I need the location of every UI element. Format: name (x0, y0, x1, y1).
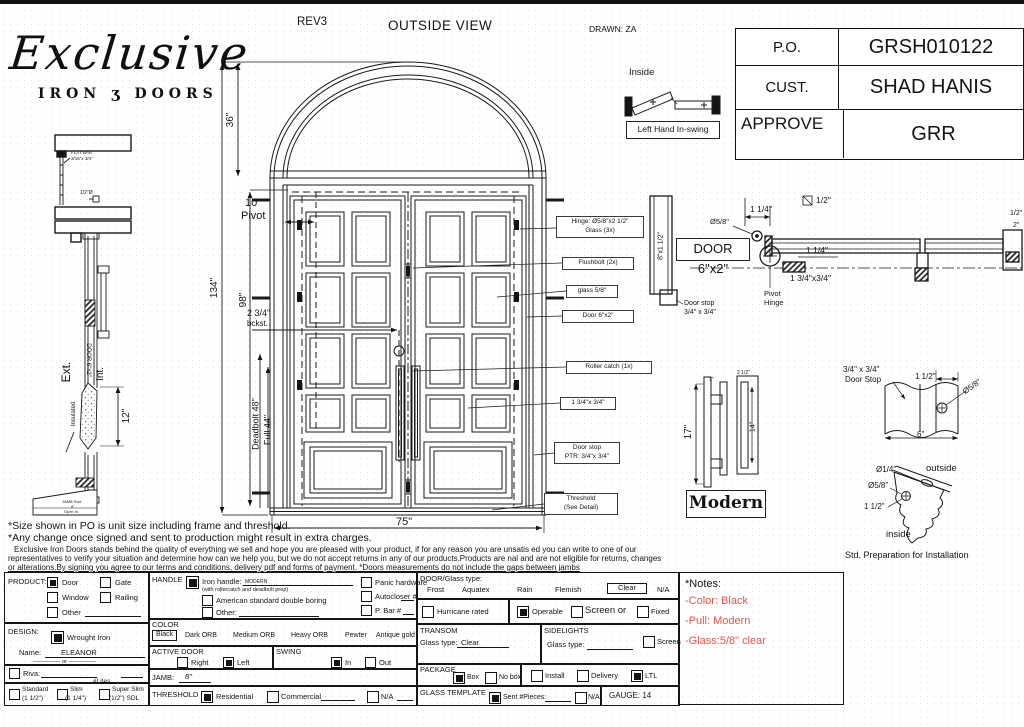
disclaimer-para2: representatives to verify your situation… (8, 555, 661, 563)
callout-roller-catch: Roller catch (1x) (566, 361, 652, 374)
ltl-label: LTL (645, 672, 657, 680)
company-logo-subtitle: IRON ʒ DOORS (38, 84, 218, 102)
color-box: COLOR Black Dark ORB Medium ORB Heavy OR… (148, 618, 418, 647)
checkbox-no-box[interactable] (485, 672, 497, 684)
table-row: P.O. GRSH010122 (736, 29, 1023, 66)
sidelights-box: SIDELIGHTS Glass type: Screen (540, 623, 680, 665)
checkbox-window[interactable] (47, 592, 58, 603)
door-glass-label: DOOR/Glass type: (420, 575, 482, 583)
logo-word-iron: IRON (38, 86, 101, 102)
color-opt-mediumorb[interactable]: Medium ORB (233, 632, 275, 640)
edge-dim-1: 1/2" (1010, 210, 1022, 217)
checkbox-ltl[interactable] (631, 670, 643, 682)
door-size-box: DOOR 6"x2" (676, 238, 750, 261)
product-other-label: Other (62, 609, 81, 617)
design-name-label: Name: (19, 649, 41, 657)
view-title: OUTSIDE VIEW (388, 19, 492, 33)
inside-face-label: inside (886, 530, 911, 540)
dim-pull-thickness: 1" (709, 378, 714, 383)
prep-dim: 1 1/2" (864, 503, 885, 511)
sidelights-glass-field[interactable] (587, 640, 633, 650)
riva-field[interactable] (41, 668, 97, 678)
glass-opt-frost[interactable]: Frost (427, 586, 444, 594)
gauge-label: GAUGE: 14 (609, 692, 651, 701)
super-slim-size-label: (1/2") SDL (109, 695, 139, 702)
lites-box: Standard (1 1/2") Slim (1 1/4") Super Sl… (4, 682, 150, 706)
swing-label: SWING (276, 648, 301, 656)
checkbox-package-box[interactable] (453, 672, 465, 684)
color-opt-heavyorb[interactable]: Heavy ORB (291, 632, 328, 640)
operable-label: Operable (532, 608, 563, 616)
gauge-box: GAUGE: 14 (600, 685, 680, 706)
riva-label: Riva: (23, 670, 40, 678)
dim-transom-height: 36" (226, 113, 236, 128)
sent-pieces-field[interactable] (545, 692, 571, 702)
company-logo-script: Exclusive (7, 26, 252, 80)
checkbox-screen[interactable] (571, 606, 583, 618)
exterior-label: Ext. (60, 362, 72, 383)
riva-box: Riva: #Lites (4, 664, 150, 684)
checkbox-delivery[interactable] (577, 670, 589, 682)
standard-size-label: (1 1/2") (22, 695, 43, 702)
door-stop-label-line1: Door stop (684, 300, 714, 307)
table-row: CUST. SHAD HANIS (736, 66, 1023, 110)
product-door-label: Door (62, 579, 78, 587)
color-opt-darkorb[interactable]: Dark ORB (185, 632, 217, 640)
backset-word: bckst. (247, 320, 268, 328)
operable-box: Operable Screen or Fixed (508, 598, 680, 625)
product-gate-label: Gate (115, 579, 131, 587)
iron-handle-field[interactable] (243, 577, 353, 586)
pbar-label: P. Bar # (375, 607, 401, 615)
swing-in-label: In (345, 659, 351, 667)
disclaimer-line1: *Size shown in PO is unit size including… (8, 521, 290, 532)
commercial-label: Commercial (281, 693, 321, 701)
transom-box: TRANSOM Glass type: Clear (416, 623, 542, 665)
inside-label: Inside (629, 68, 654, 78)
glass-template-box: GLASS TEMPLATE Sent #Pieces: N/A (416, 685, 602, 706)
door-stop-label-line2: 3/4" x 3/4" (684, 309, 716, 316)
slim-label: Slim (70, 686, 83, 693)
disclaimer-para3: or alterations.By signing you agree to o… (8, 564, 580, 572)
checkbox-handle-other[interactable] (202, 607, 213, 618)
interior-label: Int. (96, 367, 106, 381)
half-dia-label: 1/2"Ø (80, 191, 93, 196)
prep-hole-dia-quarter: Ø1/4" (876, 466, 896, 474)
checkbox-panic-hardware[interactable] (361, 577, 372, 588)
po-label: P.O. (736, 29, 839, 65)
design-label: DESIGN: (8, 628, 39, 636)
checkbox-riva[interactable] (9, 668, 20, 679)
checkbox-pbar[interactable] (361, 605, 372, 616)
checkbox-commercial[interactable] (267, 691, 279, 703)
sent-pieces-label: Sent #Pieces: (503, 694, 546, 702)
callout-glass: glass 5/8" (566, 285, 618, 298)
callout-door-stop: Door stopPTR: 3/4"x 3/4" (554, 442, 620, 464)
approve-label: APPROVE (736, 110, 844, 158)
pivot-word: Pivot (241, 211, 265, 222)
active-door-label: ACTIVE DOOR (152, 648, 204, 656)
handle-label: HANDLE (152, 576, 182, 584)
dim-pull-height: Full 44" (264, 415, 273, 445)
dim-pull-inner: 14" (750, 422, 757, 432)
logo-word-doors: DOORS (134, 86, 217, 102)
transom-glass-field[interactable] (457, 638, 509, 648)
notes-box: *Notes: -Color: Black -Pull: Modern -Gla… (678, 572, 844, 705)
fixed-label: Fixed (651, 608, 669, 616)
package-box: PACKAGE Box No box (416, 663, 522, 687)
iron-handle-label: Iron handle: (202, 578, 242, 586)
wrought-iron-label: Wrought Iron (67, 634, 110, 642)
prep-hole-dia-fiveeighths: Ø5/8" (868, 482, 888, 490)
checkbox-operable[interactable] (517, 606, 529, 618)
glass-opt-rain[interactable]: Rain (517, 586, 532, 594)
design-box: DESIGN: Wrought Iron Name: ELEANOR —————… (4, 622, 150, 666)
glass-opt-aquatex[interactable]: Aquatex (462, 586, 490, 594)
residential-label: Residential (216, 693, 253, 701)
callout-hinge-line1: Hinge: Ø5/8"x2 1/2" (559, 218, 641, 227)
cust-value: SHAD HANIS (839, 66, 1023, 109)
sidelights-glass-label: Glass type: (547, 641, 585, 649)
disclaimer-line2: *Any change once signed and sent to prod… (8, 533, 372, 544)
callout-hinge-line2: Glass (3x) (559, 227, 641, 236)
super-slim-label: Super Slim (112, 686, 144, 693)
checkbox-railing[interactable] (100, 592, 111, 603)
callout-hinge: Hinge: Ø5/8"x2 1/2" Glass (3x) (556, 216, 644, 238)
checkbox-left[interactable] (223, 657, 234, 668)
drawn-by-label: DRAWN: ZA (589, 25, 636, 34)
jamb-field[interactable] (179, 673, 211, 683)
checkbox-out[interactable] (365, 657, 376, 668)
checkbox-install[interactable] (531, 670, 543, 682)
callout-flushbolt: Flushbolt (2x) (562, 257, 634, 270)
dim-gap-label: 1 1/4" (806, 246, 828, 255)
swing-box: SWING In Out (272, 645, 418, 670)
active-right-label: Right (191, 659, 209, 667)
swing-out-label: Out (379, 659, 391, 667)
install-label: Install (545, 672, 565, 680)
american-standard-label: American standard double boring (216, 597, 327, 605)
product-window-label: Window (62, 594, 89, 602)
callout-threshold: Threshold(See Detail) (544, 493, 618, 515)
handle-other-field[interactable] (239, 607, 319, 617)
threshold-label: THRESHOLD (152, 691, 198, 699)
handle-box: HANDLE Iron handle: MODERN (with rollerc… (148, 572, 418, 620)
checkbox-fixed[interactable] (637, 606, 649, 618)
stop-size-label-line2: Door Stop (845, 376, 881, 384)
glass-template-label: GLASS TEMPLATE (420, 689, 486, 697)
outside-label: outside (926, 464, 957, 474)
dim-stop-width: 6" (917, 431, 924, 439)
color-label: COLOR (152, 621, 179, 629)
swing-diagram (625, 92, 720, 116)
checkbox-sent-pieces[interactable] (489, 692, 501, 704)
checkbox-threshold-na[interactable] (367, 691, 379, 703)
dim-door-height: 98" (239, 293, 249, 308)
checkbox-residential[interactable] (201, 691, 213, 703)
checkbox-hurricane[interactable] (422, 606, 434, 618)
checkbox-door[interactable] (47, 577, 58, 588)
iron-handle-note: (with rollercatch and deadbolt prep) (202, 587, 288, 593)
dim-pivot-inset: 1 1/4" (750, 205, 772, 214)
dim-insulation: 12" (122, 409, 132, 424)
ship-box: Install Delivery LTL (520, 663, 680, 687)
dim-pull-depth: 2 1/2" (737, 371, 750, 376)
square-bar-label: 1/2" (816, 196, 831, 205)
product-box: PRODUCT: Door Gate Window Railing Other (4, 572, 150, 624)
dim-total-height: 134" (210, 278, 220, 298)
note-color: -Color: Black (685, 595, 748, 607)
stop-block-label: 1 3/4"x3/4" (790, 274, 831, 283)
transom-glass-label: Glass type: (420, 639, 458, 647)
checkbox-gate[interactable] (100, 577, 111, 588)
swing-caption: Left Hand In-swing (626, 121, 720, 139)
checkbox-iron-handle[interactable] (186, 576, 199, 589)
door-glass-box: DOOR/Glass type: Frost Aquatex Rain Flem… (416, 572, 680, 600)
checkbox-standard[interactable] (9, 689, 20, 700)
sidelights-label: SIDELIGHTS (544, 627, 589, 635)
active-left-label: Left (237, 659, 250, 667)
dim-pivot-offset: 10" (245, 198, 261, 209)
cust-label: CUST. (736, 66, 839, 109)
jamb-size-label: 8"x1 1/2" (658, 232, 665, 260)
dim-pull-length: 17" (684, 425, 694, 440)
checkbox-sidelight-screen[interactable] (643, 636, 655, 648)
hurricane-label: Hurricane rated (437, 608, 489, 616)
checkbox-product-other[interactable] (47, 607, 58, 618)
shop-drawing-sheet: Exclusive IRON ʒ DOORS REV3 OUTSIDE VIEW… (0, 0, 1024, 727)
color-opt-pewter[interactable]: Pewter (345, 632, 367, 640)
checkbox-autocloser[interactable] (361, 591, 372, 602)
edge-dim-2: 2" (1013, 222, 1019, 229)
color-opt-antiquegold[interactable]: Antique gold (376, 632, 415, 640)
pivot-hinge-label-line2: Hinge (764, 299, 784, 307)
template-na-label: N/A (588, 694, 600, 702)
package-box-label: Box (467, 674, 479, 682)
product-other-field[interactable] (85, 607, 141, 617)
product-label: PRODUCT: (8, 578, 46, 586)
threshold-na-field[interactable] (397, 691, 413, 701)
pbar-field[interactable] (403, 605, 414, 615)
glass-opt-clear-selected[interactable]: Clear (607, 583, 647, 594)
po-value: GRSH010122 (839, 29, 1023, 65)
active-door-box: ACTIVE DOOR Right Left (148, 645, 274, 670)
note-pull: -Pull: Modern (685, 615, 750, 627)
stop-size-label-line1: 3/4" x 3/4" (843, 366, 879, 374)
prep-caption: Std. Preparation for Installation (845, 551, 969, 560)
handle-other-label: Other: (216, 609, 237, 617)
table-row: APPROVE GRR (736, 110, 1023, 158)
approve-value: GRR (844, 110, 1023, 158)
no-box-label: No box (499, 674, 521, 682)
insulated-label: Insulated (71, 402, 77, 426)
dim-stop-offset: 1 1/2" (915, 373, 936, 381)
design-name-field[interactable] (45, 648, 145, 658)
jamb-label: JAMB: (152, 674, 174, 682)
dim-deadbolt-height: Deadbolt 48" (252, 398, 261, 450)
checkbox-american-standard[interactable] (202, 595, 213, 606)
note-glass: -Glass:5/8" clear (685, 635, 766, 647)
notes-title: *Notes: (685, 578, 721, 590)
flatbar-label-line2: 3/16"x 3/4" (71, 157, 93, 162)
product-railing-label: Railing (115, 594, 138, 602)
pull-style-caption: Modern (686, 490, 766, 518)
glass-opt-na[interactable]: N/A (657, 586, 670, 594)
dim-unit-width: 75" (396, 517, 412, 528)
checkbox-wrought-iron[interactable] (51, 631, 64, 644)
dim-backset: 2 3/4" (247, 309, 270, 318)
glass-opt-flemish[interactable]: Flemish (555, 586, 581, 594)
pivot-hinge-label-line1: Pivot (764, 290, 781, 298)
scroll-icon: ʒ (111, 84, 125, 102)
door-size-rotated-label: DOOR 6"x2" (85, 343, 91, 377)
commercial-field[interactable] (321, 691, 355, 701)
screen-or-label: Screen or (585, 606, 626, 616)
delivery-label: Delivery (591, 672, 618, 680)
riva-field2[interactable] (121, 668, 143, 678)
threshold-box: THRESHOLD Residential Commercial N/A (148, 685, 418, 706)
callout-door-profile: Door 6"x2" (562, 310, 634, 323)
transom-label: TRANSOM (420, 627, 458, 635)
hurricane-box: Hurricane rated (416, 598, 510, 625)
checkbox-template-na[interactable] (575, 692, 587, 704)
color-selected[interactable]: Black (152, 630, 177, 641)
elevation-door-drawing (252, 62, 564, 515)
checkbox-in[interactable] (331, 657, 342, 668)
callout-stile-size: 1 3/4"x 3/4" (560, 397, 616, 410)
pivot-dia-label: Ø5/8" (710, 218, 729, 226)
package-label: PACKAGE (420, 666, 456, 674)
disclaimer-para1: Exclusive Iron Doors stands behind the q… (14, 546, 637, 554)
order-info-table: P.O. GRSH010122 CUST. SHAD HANIS APPROVE… (735, 28, 1024, 160)
revision-label: REV3 (297, 17, 327, 29)
flatbar-label-line1: FLAT BAR (71, 151, 92, 156)
slim-size-label: (1 1/4") (65, 695, 86, 702)
checkbox-right[interactable] (177, 657, 188, 668)
autocloser-field[interactable] (401, 591, 414, 601)
threshold-na-label: N/A (381, 693, 394, 701)
standard-label: Standard (22, 686, 48, 693)
threshold-note-line3: Open in (64, 510, 78, 514)
